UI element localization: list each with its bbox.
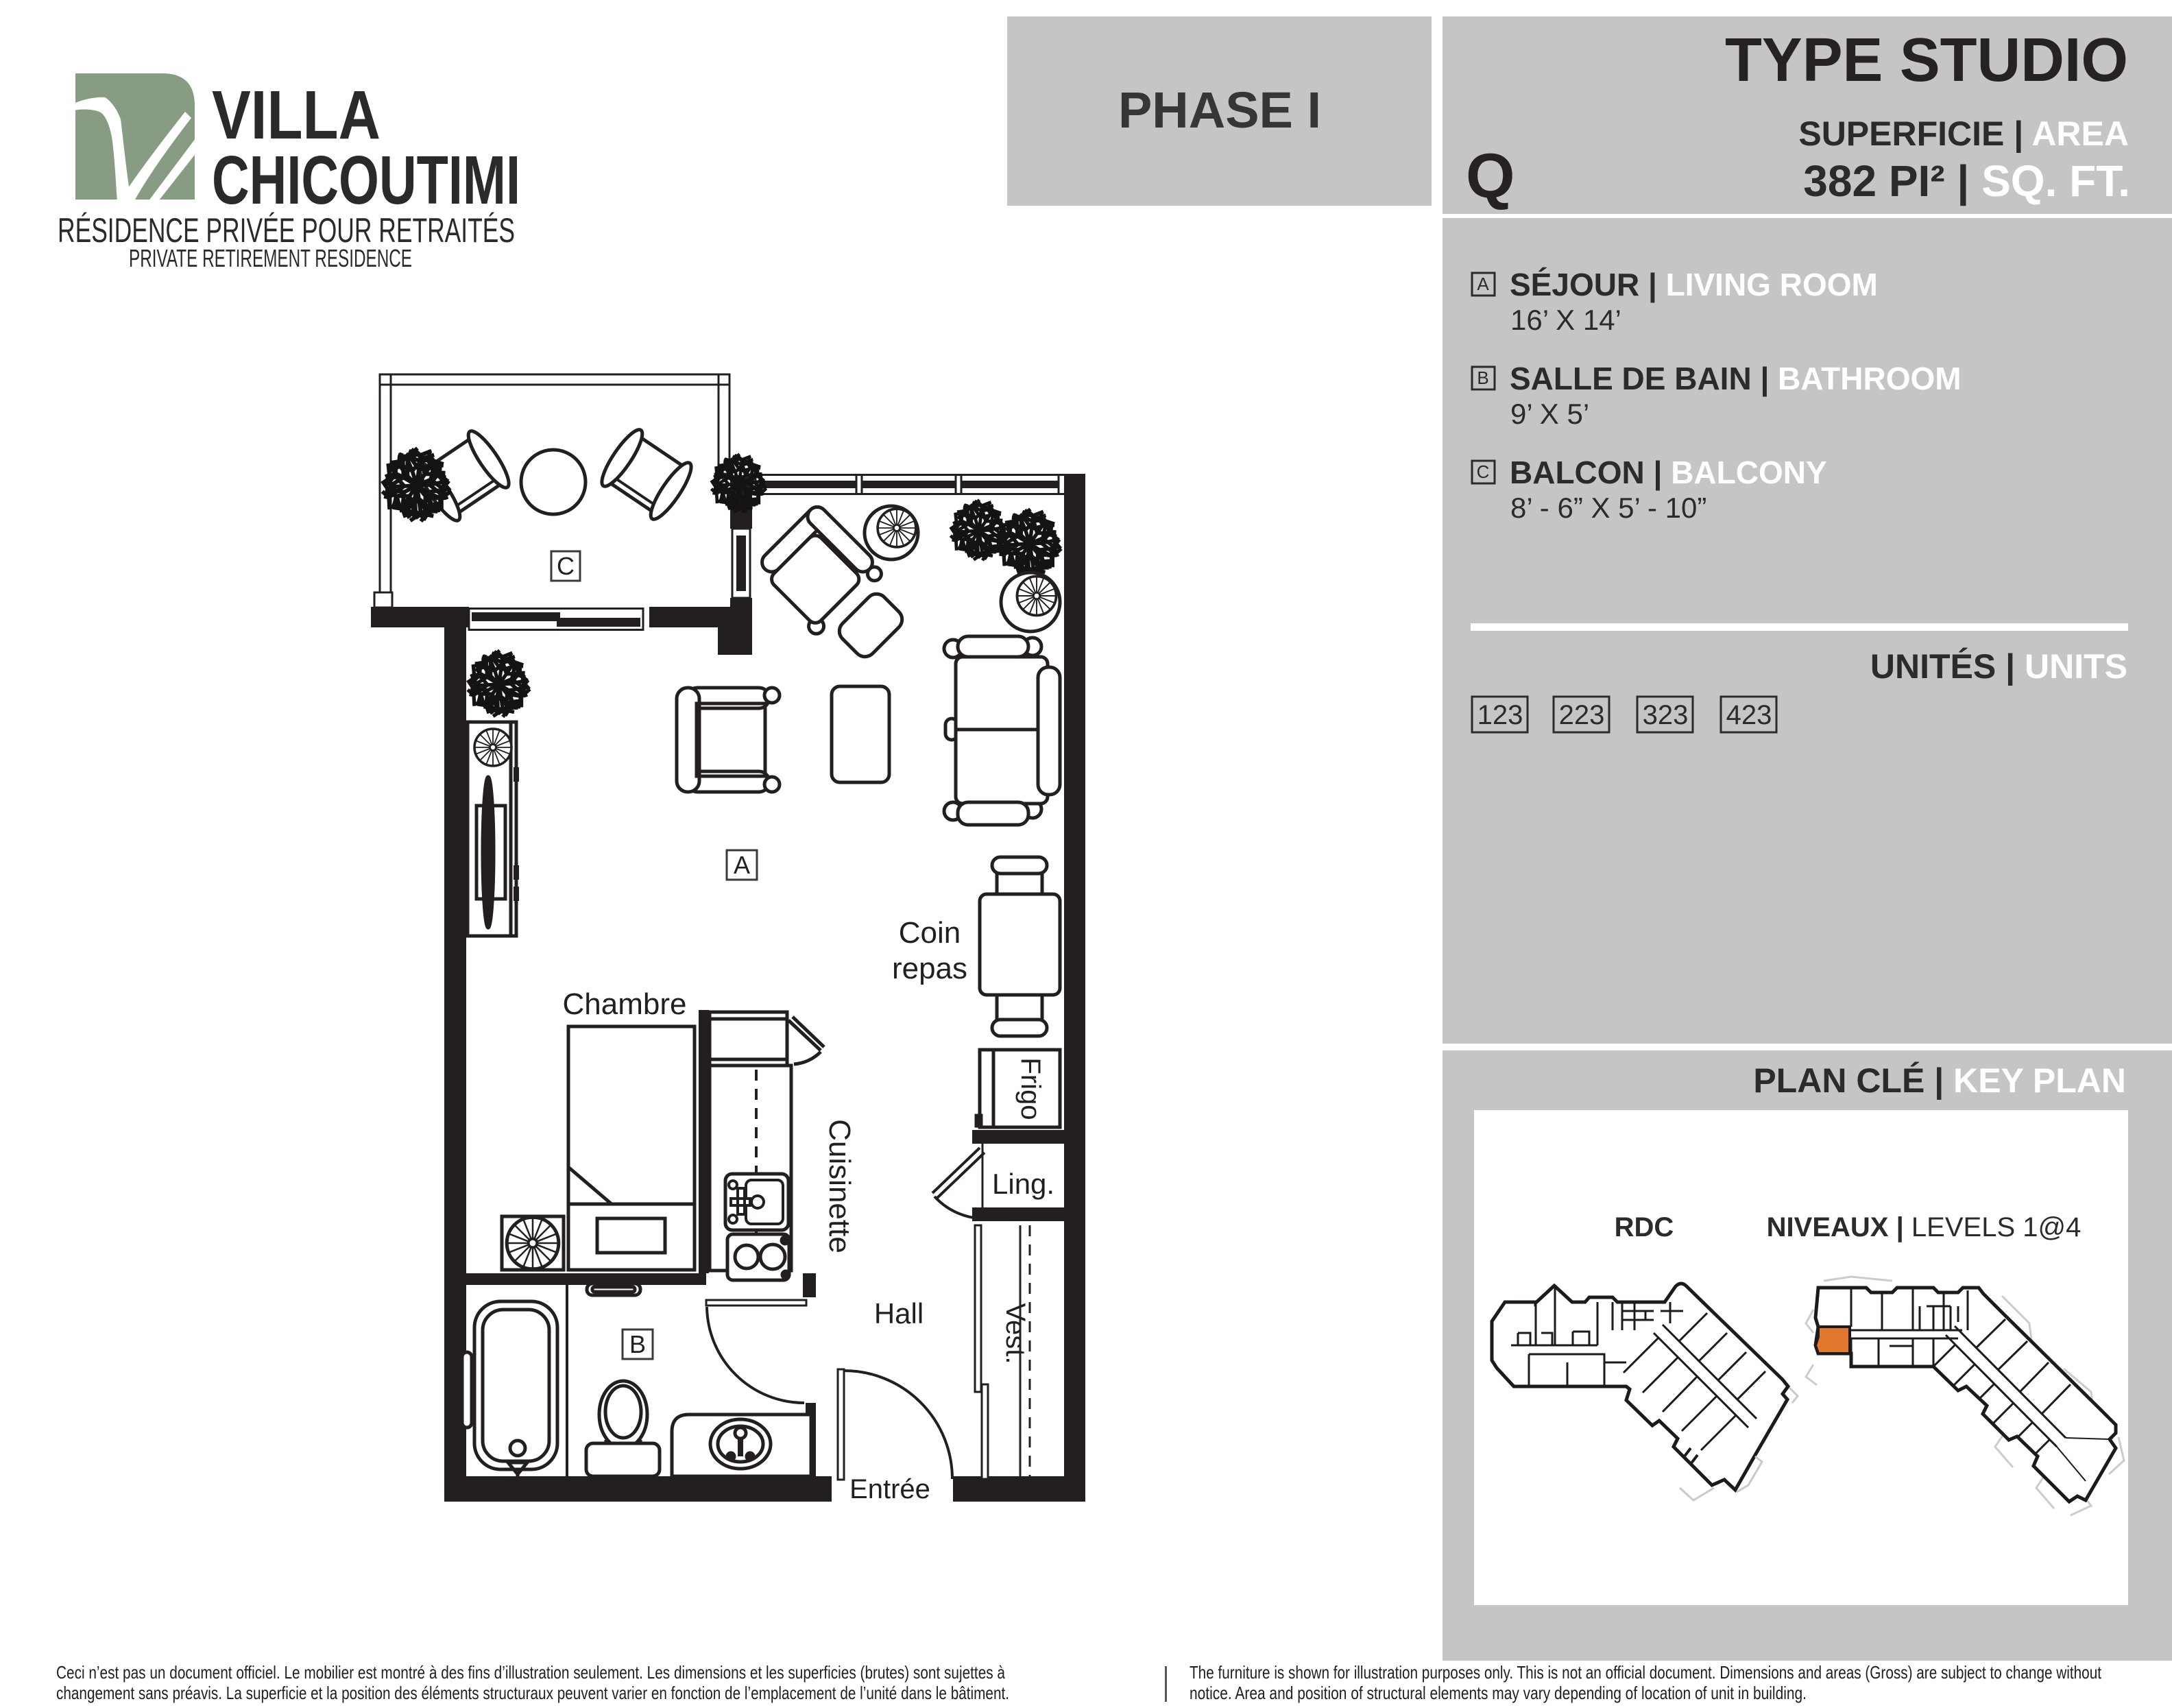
svg-text:RDC: RDC	[1615, 1212, 1674, 1242]
svg-text:Hall: Hall	[874, 1297, 924, 1330]
svg-text:B: B	[629, 1330, 646, 1358]
svg-text:16’ X 14’: 16’ X 14’	[1510, 304, 1621, 336]
svg-text:423: 423	[1726, 700, 1772, 730]
svg-text:Ling.: Ling.	[992, 1168, 1054, 1200]
svg-text:SUPERFICIE | AREA: SUPERFICIE | AREA	[1798, 115, 2129, 154]
svg-text:CHICOUTIMI: CHICOUTIMI	[212, 142, 520, 219]
svg-text:Chambre: Chambre	[563, 987, 687, 1021]
svg-text:Coin: Coin	[899, 916, 961, 950]
svg-text:223: 223	[1559, 700, 1605, 730]
svg-text:Frigo: Frigo	[1015, 1057, 1046, 1120]
svg-text:A: A	[1477, 274, 1489, 294]
svg-text:Entrée: Entrée	[849, 1474, 930, 1504]
svg-text:Q: Q	[1466, 141, 1515, 211]
svg-text:changement sans préavis. La su: changement sans préavis. La superficie e…	[56, 1683, 1009, 1703]
svg-text:382 PI² | SQ. FT.: 382 PI² | SQ. FT.	[1803, 156, 2130, 206]
svg-text:9’ X 5’: 9’ X 5’	[1510, 398, 1589, 430]
svg-text:TYPE STUDIO: TYPE STUDIO	[1725, 26, 2128, 95]
svg-text:C: C	[557, 552, 575, 580]
svg-text:Cuisinette: Cuisinette	[823, 1119, 856, 1253]
svg-text:repas: repas	[892, 952, 967, 985]
svg-text:A: A	[734, 851, 750, 879]
svg-text:323: 323	[1643, 700, 1689, 730]
svg-text:B: B	[1477, 368, 1488, 388]
svg-text:NIVEAUX | LEVELS 1@4: NIVEAUX | LEVELS 1@4	[1767, 1212, 2081, 1242]
svg-text:SÉJOUR | LIVING ROOM: SÉJOUR | LIVING ROOM	[1510, 267, 1878, 302]
svg-text:The furniture is shown for ill: The furniture is shown for illustration …	[1190, 1662, 2102, 1683]
svg-text:SALLE DE BAIN | BATHROOM: SALLE DE BAIN | BATHROOM	[1510, 361, 1962, 396]
svg-text:PHASE I: PHASE I	[1118, 82, 1321, 139]
svg-text:Ceci n’est pas un document off: Ceci n’est pas un document officiel. Le …	[56, 1662, 1005, 1683]
svg-text:8’ - 6” X 5’ - 10”: 8’ - 6” X 5’ - 10”	[1510, 492, 1706, 524]
svg-text:123: 123	[1477, 700, 1523, 730]
svg-text:UNITÉS | UNITS: UNITÉS | UNITS	[1870, 647, 2127, 686]
svg-text:notice. Area and position of s: notice. Area and position of structural …	[1190, 1683, 1807, 1703]
svg-text:BALCON | BALCONY: BALCON | BALCONY	[1510, 455, 1827, 490]
svg-text:C: C	[1477, 461, 1490, 482]
svg-text:PLAN CLÉ | KEY PLAN: PLAN CLÉ | KEY PLAN	[1753, 1061, 2126, 1100]
svg-text:Vest.: Vest.	[1000, 1303, 1030, 1364]
svg-text:PRIVATE RETIREMENT RESIDENCE: PRIVATE RETIREMENT RESIDENCE	[129, 244, 412, 272]
